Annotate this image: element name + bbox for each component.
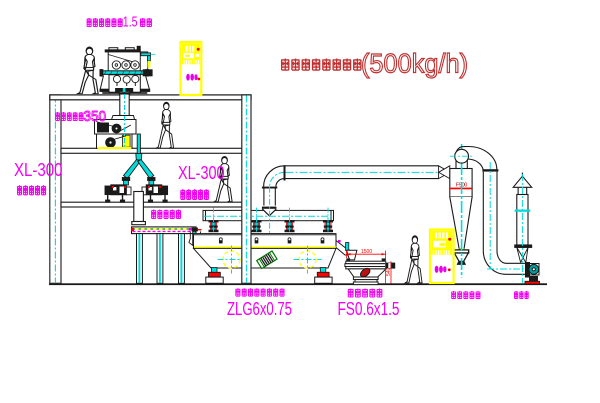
svg-text:1500: 1500: [361, 249, 372, 255]
svg-text:(500kg/h): (500kg/h): [361, 49, 468, 79]
svg-text:350: 350: [84, 109, 107, 125]
svg-text:FS0.6x1.5: FS0.6x1.5: [338, 298, 400, 319]
svg-text:ZLG6x0.75: ZLG6x0.75: [227, 299, 292, 319]
svg-text:1.5: 1.5: [123, 14, 138, 31]
svg-text:XL-300: XL-300: [178, 163, 225, 183]
svg-text:540: 540: [386, 267, 392, 276]
svg-text:XL-300: XL-300: [14, 160, 63, 180]
